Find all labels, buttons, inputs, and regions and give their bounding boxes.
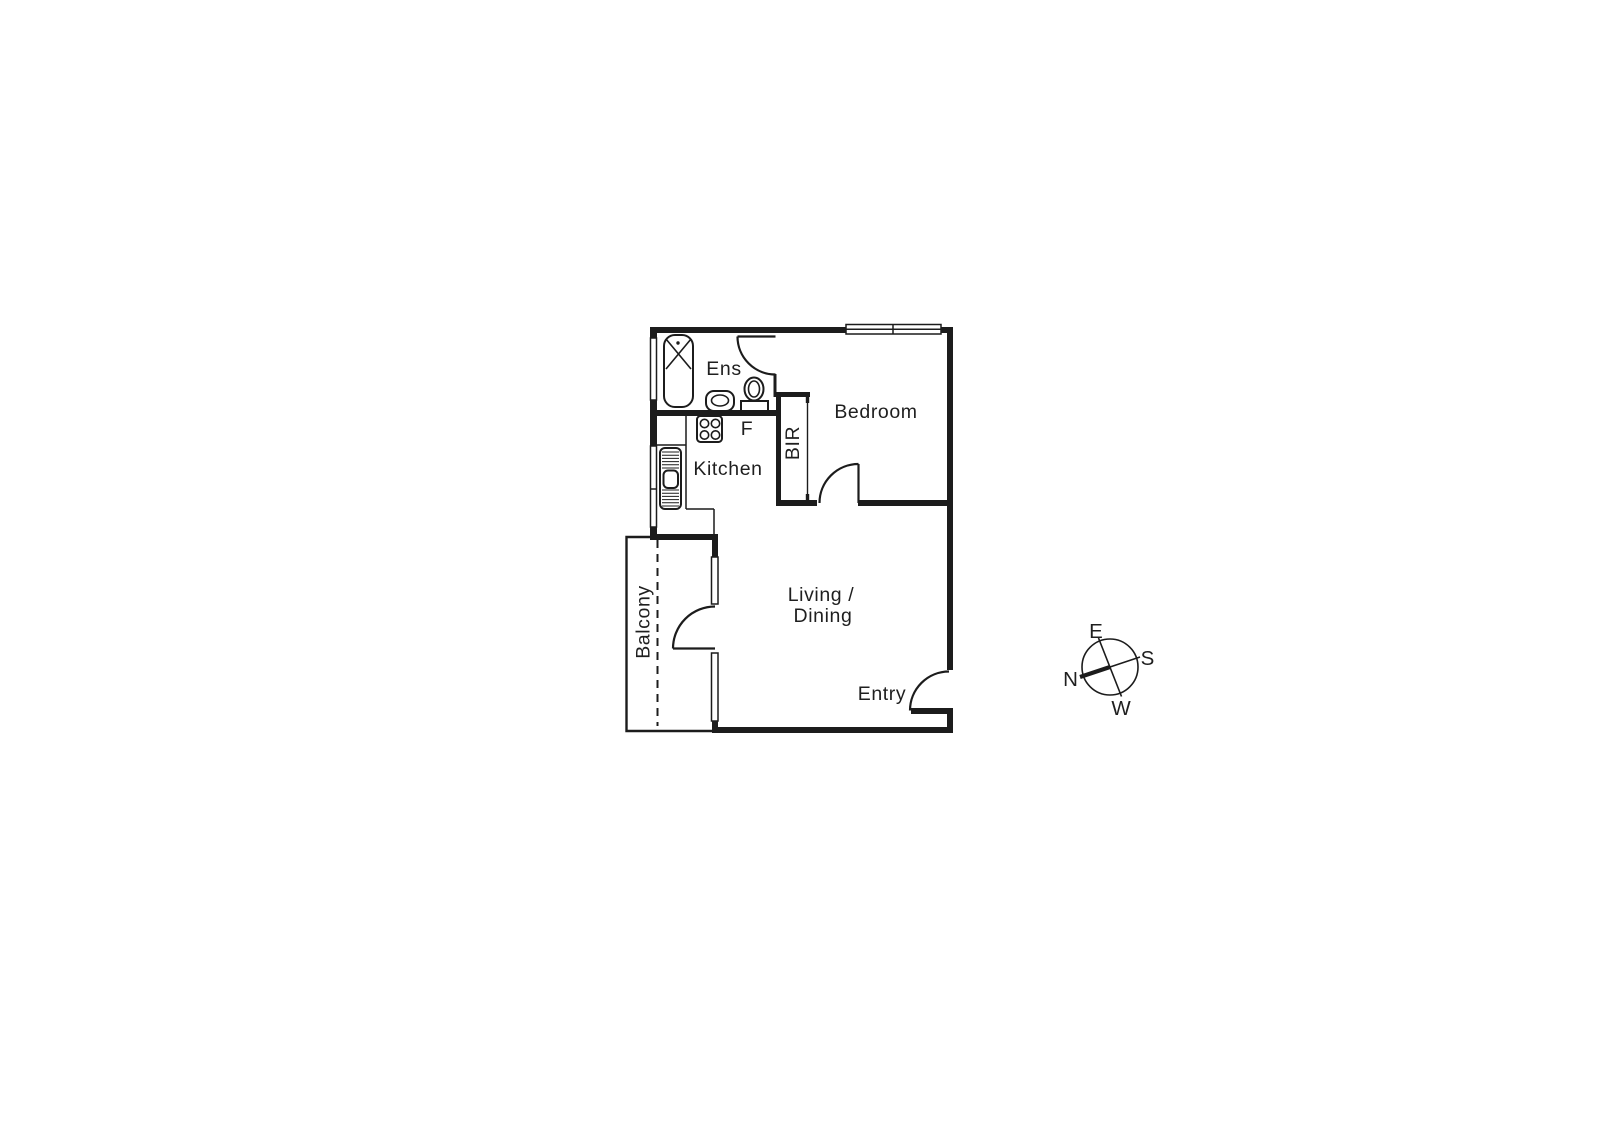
window-living-west-lower	[712, 653, 719, 721]
wall-bir-top	[776, 392, 810, 397]
room-label-balcony: Balcony	[633, 585, 655, 659]
room-label-ens: Ens	[706, 358, 741, 380]
wall-right	[947, 327, 953, 670]
ens-door	[738, 337, 776, 375]
balcony-door	[673, 607, 715, 649]
wall-kitchen-bottom	[650, 534, 715, 540]
walls	[650, 327, 953, 733]
bathtub	[664, 335, 693, 407]
wall-left-seg1	[650, 327, 657, 339]
room-label-kitchen: Kitchen	[693, 458, 762, 480]
wall-entry-notch-h	[911, 708, 953, 714]
room-label-living-line1: Living /	[788, 584, 855, 606]
window-ens-west	[651, 338, 657, 400]
window-living-west-upper	[712, 557, 719, 604]
floor-plan-page: Ens F Kitchen BIR Bedroom Living / Dinin…	[0, 0, 1600, 1131]
kitchen-sink	[660, 448, 681, 509]
wall-west-seg2	[712, 721, 718, 733]
room-label-bir: BIR	[782, 426, 804, 460]
entry-door	[910, 672, 949, 711]
compass-axis-south	[1110, 657, 1140, 667]
wall-ens-east-stub	[774, 374, 777, 397]
compass-north-pointer	[1080, 667, 1110, 677]
window-bedroom-north	[846, 325, 941, 335]
room-label-living-line2: Dining	[794, 605, 853, 627]
room-label-fridge: F	[741, 418, 754, 440]
compass-label-south: S	[1141, 647, 1155, 670]
stove-cooktop	[697, 416, 722, 442]
basin	[706, 391, 734, 411]
compass-rose: E S N W	[1063, 620, 1154, 720]
wall-bedroom-bottom-right	[858, 500, 953, 506]
window-kitchen-west	[651, 446, 657, 527]
wall-left-seg2	[650, 400, 657, 446]
toilet	[741, 378, 768, 412]
wall-top-left	[650, 327, 846, 333]
room-label-entry: Entry	[858, 683, 907, 705]
wall-bir-left	[776, 392, 781, 506]
compass-label-north: N	[1063, 668, 1078, 691]
room-label-bedroom: Bedroom	[834, 401, 917, 423]
windows	[651, 325, 942, 722]
bedroom-door	[820, 464, 859, 503]
wall-bottom	[712, 727, 953, 733]
wall-west-seg1	[712, 534, 718, 558]
compass-label-east: E	[1089, 620, 1103, 643]
floor-plan-svg: Ens F Kitchen BIR Bedroom Living / Dinin…	[0, 0, 1600, 1131]
compass-label-west: W	[1111, 697, 1131, 720]
wall-bedroom-bottom-left	[776, 500, 817, 506]
